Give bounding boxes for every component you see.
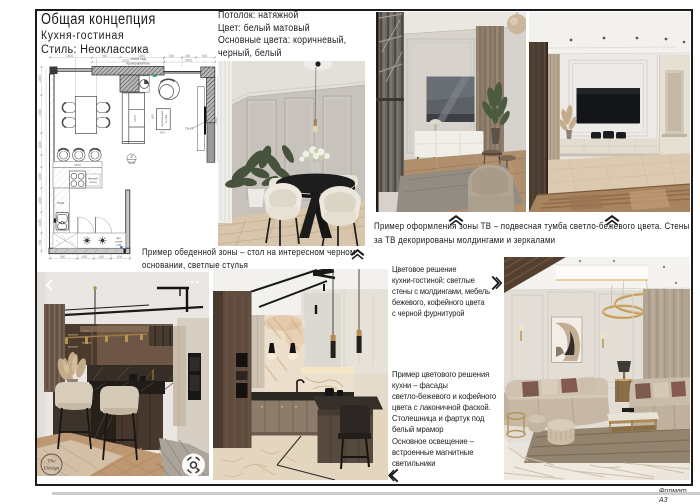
svg-text:600: 600 xyxy=(202,54,208,58)
svg-text:950: 950 xyxy=(60,255,66,259)
svg-text:500: 500 xyxy=(160,131,165,135)
svg-text:Дш: Дш xyxy=(117,236,121,240)
svg-text:1050: 1050 xyxy=(38,219,42,226)
svg-text:600: 600 xyxy=(82,255,88,259)
svg-text:холод: холод xyxy=(89,181,97,184)
svg-text:1050: 1050 xyxy=(38,173,42,180)
svg-text:900: 900 xyxy=(38,239,42,245)
svg-text:2400: 2400 xyxy=(133,115,137,122)
svg-text:ПММ: ПММ xyxy=(57,201,65,205)
svg-text:Design: Design xyxy=(43,466,60,472)
svg-text:1100: 1100 xyxy=(38,141,42,148)
svg-text:2: 2 xyxy=(129,154,133,159)
svg-text:1200: 1200 xyxy=(38,197,42,204)
svg-text:проигрыватель: проигрыватель xyxy=(126,61,150,65)
svg-text:ТВ 65": ТВ 65" xyxy=(185,127,194,131)
svg-text:столик: столик xyxy=(165,114,168,123)
svg-text:2400: 2400 xyxy=(185,58,192,62)
svg-text:600: 600 xyxy=(117,255,123,259)
svg-text:The: The xyxy=(47,459,56,465)
svg-text:31.02: 31.02 xyxy=(128,160,136,164)
svg-text:1800: 1800 xyxy=(74,163,81,167)
svg-text:Винный: Винный xyxy=(88,176,98,180)
svg-text:1900: 1900 xyxy=(38,109,42,116)
svg-text:600: 600 xyxy=(169,54,175,58)
svg-text:журнальный: журнальный xyxy=(160,111,164,127)
svg-text:800: 800 xyxy=(151,114,155,119)
svg-text:950: 950 xyxy=(102,54,108,58)
svg-text:1400: 1400 xyxy=(38,75,42,82)
svg-text:1800: 1800 xyxy=(66,54,73,58)
svg-text:600: 600 xyxy=(99,255,105,259)
svg-text:450: 450 xyxy=(185,54,191,58)
